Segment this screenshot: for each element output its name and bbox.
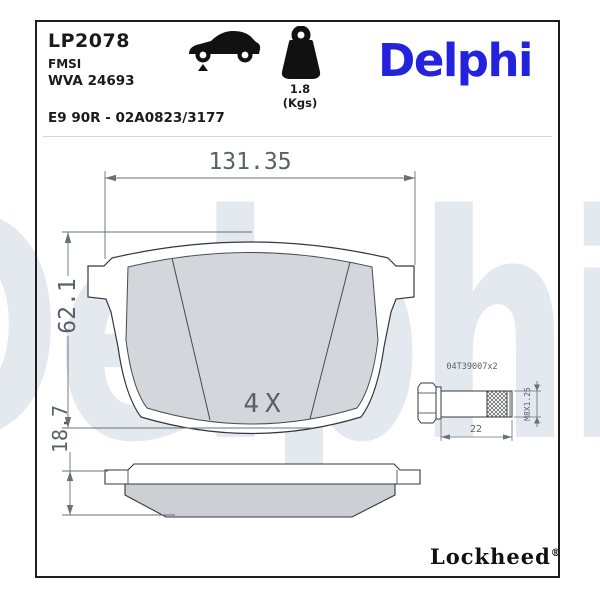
- front-axle-marker: [198, 64, 208, 71]
- lockheed-logo-text: Lockheed: [430, 544, 551, 569]
- part-number: LP2078: [48, 30, 130, 52]
- side-backing-plate: [105, 464, 420, 484]
- bolt-part-label: 04T39007x2: [437, 362, 507, 372]
- bolt-thread-label: M8X1.25: [520, 374, 536, 434]
- fmsi-label: FMSI: [48, 57, 81, 71]
- bolt-hex-head: [418, 383, 436, 423]
- bolt-flange: [436, 387, 441, 419]
- width-dim-label: 131.35: [185, 150, 315, 174]
- side-friction-material: [125, 484, 395, 517]
- weight-icon: [277, 26, 325, 82]
- car-front-axle-icon: [186, 27, 262, 71]
- height-dim-label: 62.1: [40, 276, 96, 336]
- bolt-thread-section: [487, 391, 507, 417]
- brake-pad-datasheet: Delphi LP2078 FMSI WVA 24693 E9 90R - 02…: [0, 0, 600, 600]
- bolt-length-label: 22: [458, 424, 494, 435]
- quantity-label: 4X: [228, 390, 302, 418]
- lockheed-logo: Lockheed®: [430, 544, 554, 569]
- thickness-dim-label: 18.7: [46, 399, 74, 459]
- homologation-number: E9 90R - 02A0823/3177: [48, 110, 225, 126]
- brand-logo: Delphi: [378, 34, 532, 87]
- weight-value: 1.8 (Kgs): [272, 82, 328, 110]
- wva-number: WVA 24693: [48, 73, 135, 89]
- registered-mark: ®: [551, 548, 562, 559]
- pad-side-view: [105, 464, 420, 517]
